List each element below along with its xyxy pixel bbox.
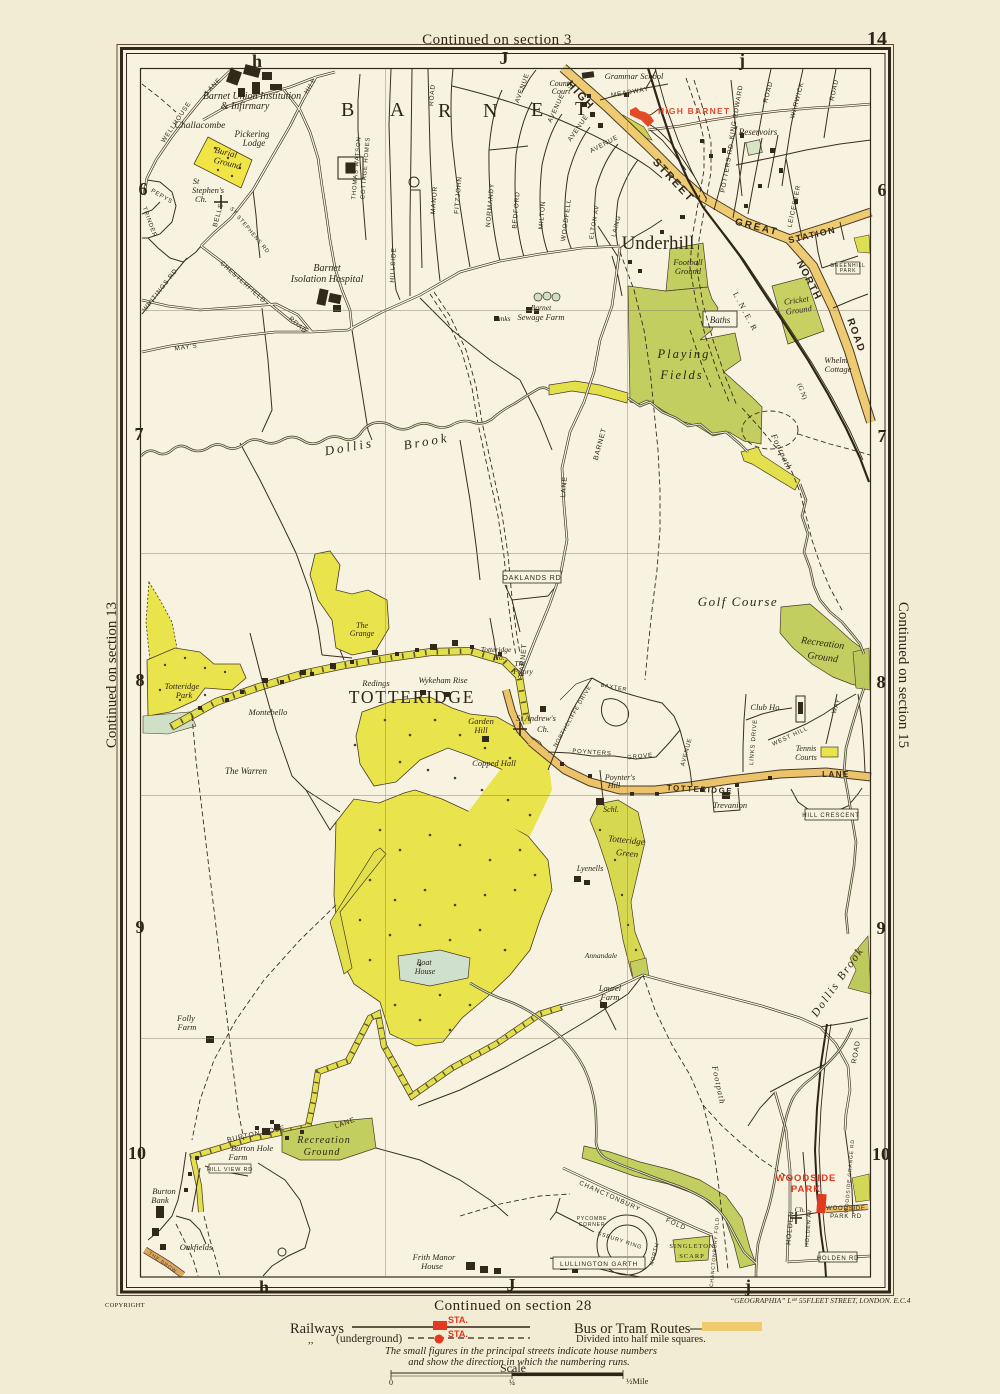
svg-text:Continued on section 13: Continued on section 13	[104, 602, 120, 748]
svg-text:10: 10	[872, 1144, 890, 1164]
svg-text:HILL CRESCENT: HILL CRESCENT	[802, 813, 860, 819]
svg-text:(underground): (underground)	[336, 1333, 402, 1345]
svg-text:HIGH BARNET: HIGH BARNET	[658, 106, 730, 116]
svg-text:LULLINGTON GARTH: LULLINGTON GARTH	[560, 1261, 638, 1268]
svg-text:Farm: Farm	[228, 1152, 248, 1162]
svg-text:Redings: Redings	[361, 678, 390, 688]
svg-text:14: 14	[867, 28, 887, 50]
svg-text:OAKLANDS RD: OAKLANDS RD	[503, 575, 562, 582]
svg-text:Continued on section 15: Continued on section 15	[895, 602, 911, 748]
svg-text:House: House	[414, 967, 436, 976]
svg-text:6: 6	[139, 179, 148, 199]
svg-text:Ground: Ground	[304, 1147, 341, 1158]
svg-text:h: h	[252, 51, 262, 71]
svg-text:Lyenells: Lyenells	[576, 864, 603, 873]
svg-text:SCARP: SCARP	[679, 1253, 705, 1260]
svg-text:The Warren: The Warren	[225, 766, 268, 776]
svg-text:Continued on section 28: Continued on section 28	[434, 1298, 592, 1314]
svg-text:Sewage Farm: Sewage Farm	[518, 312, 565, 322]
svg-text:Grammar School: Grammar School	[605, 71, 664, 81]
svg-text:TOTTERIDGE: TOTTERIDGE	[349, 687, 476, 707]
svg-text:Continued on section 3: Continued on section 3	[422, 32, 572, 48]
svg-text:Underhill: Underhill	[622, 233, 695, 254]
svg-text:Challacombe: Challacombe	[175, 121, 226, 131]
svg-text:J: J	[507, 1275, 516, 1295]
svg-text:Grange: Grange	[350, 629, 375, 638]
svg-text:Ch.: Ch.	[795, 1205, 806, 1214]
svg-text:HOLDEN RD: HOLDEN RD	[817, 1256, 860, 1262]
svg-text:Baths: Baths	[710, 315, 731, 325]
svg-text:,,: ,,	[308, 1334, 314, 1346]
svg-text:Ch.: Ch.	[195, 194, 207, 204]
svg-text:Recreation: Recreation	[296, 1135, 351, 1146]
svg-text:STA.: STA.	[448, 1329, 468, 1339]
svg-text:8: 8	[136, 670, 145, 690]
svg-text:Tanks: Tanks	[493, 314, 510, 323]
svg-text:j: j	[744, 1276, 751, 1296]
svg-text:N: N	[483, 100, 497, 122]
svg-text:LANE: LANE	[822, 770, 850, 779]
svg-text:Schl.: Schl.	[603, 805, 619, 814]
svg-text:Farm: Farm	[177, 1022, 197, 1032]
svg-text:6: 6	[878, 180, 887, 200]
svg-text:PARK: PARK	[840, 268, 856, 274]
svg-text:Divided into half mile squares: Divided into half mile squares.	[576, 1334, 706, 1345]
svg-text:HILL VIEW RD: HILL VIEW RD	[207, 1167, 253, 1173]
svg-text:Oakfields: Oakfields	[180, 1242, 213, 1252]
svg-text:COPYRIGHT: COPYRIGHT	[105, 1302, 145, 1309]
svg-text:WOODSIDE: WOODSIDE	[776, 1173, 837, 1184]
svg-text:j: j	[738, 50, 745, 70]
svg-text:E: E	[531, 99, 543, 121]
svg-text:Cottage: Cottage	[825, 364, 852, 374]
svg-text:STA.: STA.	[448, 1315, 468, 1325]
svg-text:Reservoirs: Reservoirs	[738, 127, 778, 137]
svg-text:Wykeham Rise: Wykeham Rise	[418, 675, 467, 685]
svg-text:SINGLETON: SINGLETON	[669, 1243, 714, 1250]
svg-text:Ho.: Ho.	[492, 653, 504, 662]
svg-text:Club Ho.: Club Ho.	[750, 702, 781, 712]
svg-text:St Andrew's: St Andrew's	[516, 713, 557, 723]
svg-text:Playing: Playing	[657, 347, 711, 361]
svg-text:Bank: Bank	[151, 1195, 169, 1205]
svg-text:Ground: Ground	[675, 266, 702, 276]
svg-text:Lodge: Lodge	[242, 138, 266, 148]
svg-text:The small figures in the princ: The small figures in the principal stree…	[385, 1346, 657, 1357]
svg-text:0: 0	[389, 1378, 393, 1387]
svg-text:Fields: Fields	[659, 368, 703, 382]
svg-text:7: 7	[135, 424, 144, 444]
svg-text:Trevanion: Trevanion	[713, 800, 747, 810]
svg-text:Annandale: Annandale	[584, 951, 618, 960]
svg-text:B: B	[341, 99, 354, 121]
svg-text:Ch.: Ch.	[537, 724, 549, 734]
svg-text:Hill: Hill	[607, 781, 621, 790]
svg-text:A: A	[390, 99, 405, 121]
svg-text:7: 7	[878, 426, 887, 446]
svg-text:9: 9	[877, 918, 886, 938]
svg-text:h: h	[259, 1277, 269, 1297]
svg-text:Courts: Courts	[795, 753, 817, 762]
svg-text:8: 8	[877, 672, 886, 692]
svg-text:“GEOGRAPHIA” Lᵗᴹ 55FLEET STREE: “GEOGRAPHIA” Lᵗᴹ 55FLEET STREET, LONDON.…	[730, 1296, 911, 1305]
svg-text:9: 9	[136, 917, 145, 937]
svg-text:Montebello: Montebello	[248, 707, 288, 717]
svg-text:Isolation Hospital: Isolation Hospital	[290, 274, 364, 285]
svg-text:½Mile: ½Mile	[626, 1376, 649, 1386]
svg-text:J: J	[500, 48, 509, 68]
svg-text:Golf Course: Golf Course	[698, 594, 778, 609]
svg-text:House: House	[420, 1261, 443, 1271]
svg-text:Copped Hall: Copped Hall	[472, 758, 516, 768]
svg-text:Tennis: Tennis	[796, 744, 817, 753]
svg-text:¼: ¼	[509, 1378, 515, 1387]
svg-text:Park: Park	[175, 690, 193, 700]
svg-text:Farm: Farm	[600, 992, 620, 1002]
svg-text:CORNER: CORNER	[579, 1222, 605, 1228]
svg-text:WOODSIDE: WOODSIDE	[826, 1206, 866, 1212]
svg-text:PARK RD: PARK RD	[830, 1214, 862, 1220]
svg-text:Barnet: Barnet	[313, 263, 340, 274]
svg-text:& Infirmary: & Infirmary	[221, 101, 270, 112]
svg-text:PARK: PARK	[791, 1184, 821, 1195]
svg-text:10: 10	[128, 1143, 146, 1163]
svg-text:Hill: Hill	[473, 725, 488, 735]
svg-text:R: R	[438, 100, 452, 122]
svg-text:Boat: Boat	[416, 958, 432, 967]
